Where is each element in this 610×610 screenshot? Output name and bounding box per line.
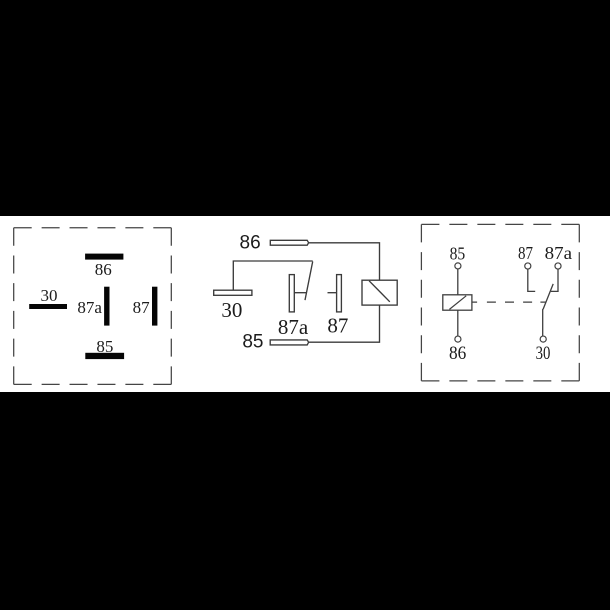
svg-text:87a: 87a (278, 315, 309, 339)
svg-text:86: 86 (240, 233, 261, 254)
svg-text:87a: 87a (77, 298, 102, 317)
svg-text:86: 86 (95, 260, 112, 279)
svg-text:87: 87 (133, 298, 151, 317)
svg-text:30: 30 (221, 298, 242, 322)
svg-text:30: 30 (41, 286, 58, 305)
svg-text:85: 85 (242, 332, 263, 353)
svg-text:87: 87 (518, 243, 533, 263)
svg-text:85: 85 (450, 243, 466, 263)
svg-text:87a: 87a (545, 243, 573, 263)
svg-text:30: 30 (536, 344, 551, 364)
svg-text:86: 86 (449, 344, 466, 364)
svg-text:87: 87 (327, 314, 348, 338)
